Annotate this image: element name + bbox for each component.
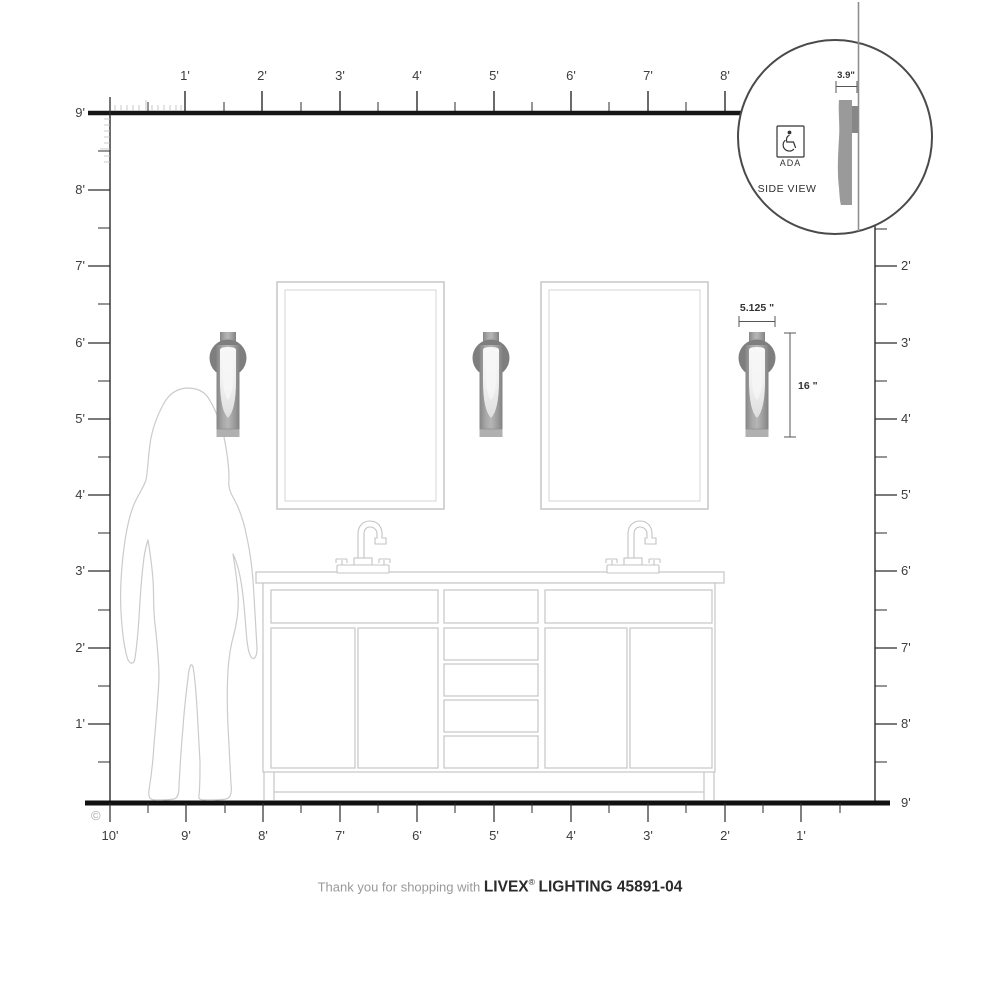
right-major-ticks — [875, 266, 897, 724]
ruler-label: 3' — [75, 563, 85, 578]
inset-circle — [738, 40, 932, 234]
width-dimension-line — [739, 316, 775, 327]
ruler-label: 6' — [75, 335, 85, 350]
width-dimension: 5.125 " — [739, 302, 775, 327]
ruler-label: 9' — [181, 828, 191, 843]
vanity-drawer — [444, 736, 538, 768]
ruler-label: 1' — [180, 68, 190, 83]
sconce-side-profile — [838, 100, 852, 205]
vanity-door — [271, 628, 355, 768]
ruler-label: 10' — [102, 828, 119, 843]
registered-mark: ® — [529, 877, 535, 887]
ruler-label: 5' — [489, 828, 499, 843]
product-dimension-diagram: 1' 2' 3' 4' 5' 6' 7' 8' 9' 8' 7' 6' 5' 4… — [0, 0, 1000, 1000]
ada-label: ADA — [780, 158, 802, 168]
height-dimension: 16 " — [784, 333, 818, 437]
ruler-label: 1' — [796, 828, 806, 843]
ruler-label: 4' — [566, 828, 576, 843]
sconce-right — [739, 332, 776, 437]
mirror-right — [541, 282, 708, 509]
bottom-ruler: 10' 9' 8' 7' 6' 5' 4' 3' 2' 1' © — [85, 803, 890, 843]
height-dimension-label: 16 " — [798, 380, 818, 392]
height-dimension-line — [784, 333, 796, 437]
vanity-door — [358, 628, 438, 768]
footer-thankyou-text: Thank you for shopping with — [318, 879, 481, 894]
vanity-top-panel — [545, 590, 712, 623]
top-minor-ticks — [148, 102, 763, 111]
width-dimension-label: 5.125 " — [740, 302, 774, 314]
faucet-right — [606, 521, 660, 573]
left-minor-ticks — [98, 151, 110, 762]
ruler-label: 3' — [901, 335, 911, 350]
vanity-drawer — [444, 664, 538, 696]
mirror-left — [277, 282, 444, 509]
vanity-countertop — [256, 572, 724, 583]
ruler-label: 2' — [75, 640, 85, 655]
ruler-label: 6' — [412, 828, 422, 843]
ruler-label: 6' — [901, 563, 911, 578]
vanity-door — [545, 628, 627, 768]
vanity-drawer — [444, 628, 538, 660]
footer: Thank you for shopping with LIVEX® LIGHT… — [0, 878, 1000, 896]
vanity-door — [630, 628, 712, 768]
faucet-left — [336, 521, 390, 573]
ruler-label: 9' — [901, 795, 911, 810]
ruler-label: 9' — [75, 105, 85, 120]
vanity-drawer — [444, 700, 538, 732]
sconce-mount-bracket — [852, 106, 858, 133]
copyright-mark: © — [91, 808, 101, 823]
ruler-label: 2' — [901, 258, 911, 273]
product-number: LIGHTING 45891-04 — [539, 878, 683, 895]
left-ruler: 9' 8' 7' 6' 5' 4' 3' 2' 1' — [75, 105, 110, 803]
vanity-top-panel — [444, 590, 538, 623]
ruler-label: 7' — [901, 640, 911, 655]
ruler-label: 4' — [412, 68, 422, 83]
ruler-label: 7' — [75, 258, 85, 273]
sconce-center — [473, 332, 510, 437]
brand-name: LIVEX — [484, 878, 529, 895]
ruler-label: 2' — [720, 828, 730, 843]
ruler-label: 8' — [901, 716, 911, 731]
vanity-legs — [264, 772, 714, 800]
depth-dimension-label: 3.9" — [837, 70, 855, 81]
ruler-label: 6' — [566, 68, 576, 83]
ruler-label: 3' — [335, 68, 345, 83]
ruler-label: 5' — [75, 411, 85, 426]
scale-figure-woman — [121, 388, 257, 800]
ruler-label: 8' — [75, 182, 85, 197]
diagram-svg: 1' 2' 3' 4' 5' 6' 7' 8' 9' 8' 7' 6' 5' 4… — [0, 0, 1000, 1000]
ruler-label: 7' — [335, 828, 345, 843]
ruler-label: 4' — [75, 487, 85, 502]
side-view-label: SIDE VIEW — [758, 183, 817, 195]
ruler-label: 5' — [489, 68, 499, 83]
vanity-top-panel — [271, 590, 438, 623]
ruler-label: 1' — [75, 716, 85, 731]
ruler-label: 3' — [643, 828, 653, 843]
side-view-inset: 3.9" ADA SIDE VIEW — [738, 2, 932, 234]
left-inch-hatch — [100, 119, 110, 162]
ruler-label: 2' — [257, 68, 267, 83]
ruler-label: 7' — [643, 68, 653, 83]
ada-badge: ADA — [777, 126, 804, 168]
right-ruler: 2' 3' 4' 5' 6' 7' 8' 9' — [875, 226, 911, 810]
ruler-label: 8' — [258, 828, 268, 843]
ruler-label: 5' — [901, 487, 911, 502]
ruler-label: 4' — [901, 411, 911, 426]
vanity — [256, 572, 724, 800]
ruler-label: 8' — [720, 68, 730, 83]
